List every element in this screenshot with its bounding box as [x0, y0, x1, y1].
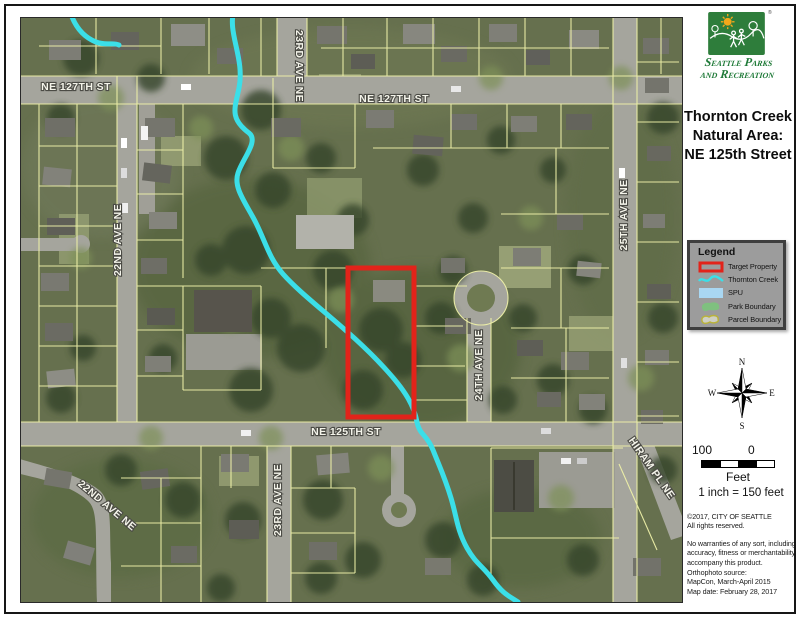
- legend-box: Legend Target Property Thornton Creek SP…: [687, 240, 786, 330]
- legend-swatch-spu-icon: [698, 287, 724, 299]
- legend-swatch-parcel-icon: [698, 313, 724, 325]
- copyright-text: ©2017, CITY OF SEATTLE All rights reserv…: [687, 512, 772, 531]
- road-west-lane: [21, 238, 79, 251]
- street-label-ne-127th-st-e: NE 127TH ST: [359, 93, 429, 105]
- legend-swatch-park-icon: [698, 300, 724, 312]
- legend-item-thornton-creek: Thornton Creek: [698, 273, 783, 286]
- warranty-text: No warranties of any sort, including acc…: [687, 539, 796, 567]
- legend-title: Legend: [698, 246, 783, 258]
- compass-rose-icon: N E S W: [707, 355, 777, 433]
- street-label-23rd-ave-ne-s: 23RD AVE NE: [272, 464, 284, 536]
- legend-item-parcel-boundary: Parcel Boundary: [698, 313, 783, 326]
- street-label-24th-ave-ne: 24TH AVE NE: [473, 330, 485, 401]
- street-label-25th-ave-ne: 25TH AVE NE: [618, 180, 630, 251]
- aerial-map: NE 127TH ST NE 127TH ST 23RD AVE NE 22ND…: [21, 18, 682, 602]
- legend-swatch-creek-icon: [698, 274, 724, 286]
- scale-unit: Feet: [682, 470, 794, 484]
- street-label-ne-125th-st: NE 125TH ST: [311, 426, 381, 438]
- street-label-ne-127th-st-w: NE 127TH ST: [41, 81, 111, 93]
- parks-logo-wordmark: Seattle Parks and Recreation: [681, 56, 796, 80]
- scale-right-value: 0: [748, 443, 755, 457]
- legend-item-park-boundary: Park Boundary: [698, 300, 783, 313]
- legend-item-spu: SPU: [698, 286, 783, 299]
- road-25th-ave-ne: [613, 18, 637, 602]
- map-title: Thornton Creek Natural Area: NE 125th St…: [682, 108, 794, 165]
- parks-logo-icon: [708, 12, 765, 55]
- legend-item-target-property: Target Property: [698, 260, 783, 273]
- scale-values: 100 0: [682, 443, 794, 457]
- registered-mark: ®: [768, 10, 772, 16]
- scale-bar: [701, 460, 775, 468]
- scale-left-value: 100: [692, 443, 712, 457]
- street-label-23rd-ave-ne-n: 23RD AVE NE: [293, 30, 305, 102]
- compass-n: N: [739, 357, 746, 367]
- cul-de-sac-island-south: [391, 502, 407, 518]
- compass-s: S: [739, 421, 744, 431]
- side-panel: ® Seattle Parks and Recreation Thornton …: [682, 0, 794, 618]
- source-text: Orthophoto source: MapCon, March-April 2…: [687, 568, 777, 596]
- compass-e: E: [769, 388, 775, 398]
- cul-de-sac-island: [467, 284, 495, 312]
- scale-ratio: 1 inch = 150 feet: [682, 487, 800, 499]
- legend-swatch-target-property-icon: [698, 261, 724, 273]
- street-label-22nd-ave-ne: 22ND AVE NE: [112, 204, 124, 276]
- map-document: { "panel": { "logo": { "alt": "Seattle P…: [0, 0, 800, 618]
- map-canvas: NE 127TH ST NE 127TH ST 23RD AVE NE 22ND…: [20, 17, 683, 603]
- compass-w: W: [708, 388, 717, 398]
